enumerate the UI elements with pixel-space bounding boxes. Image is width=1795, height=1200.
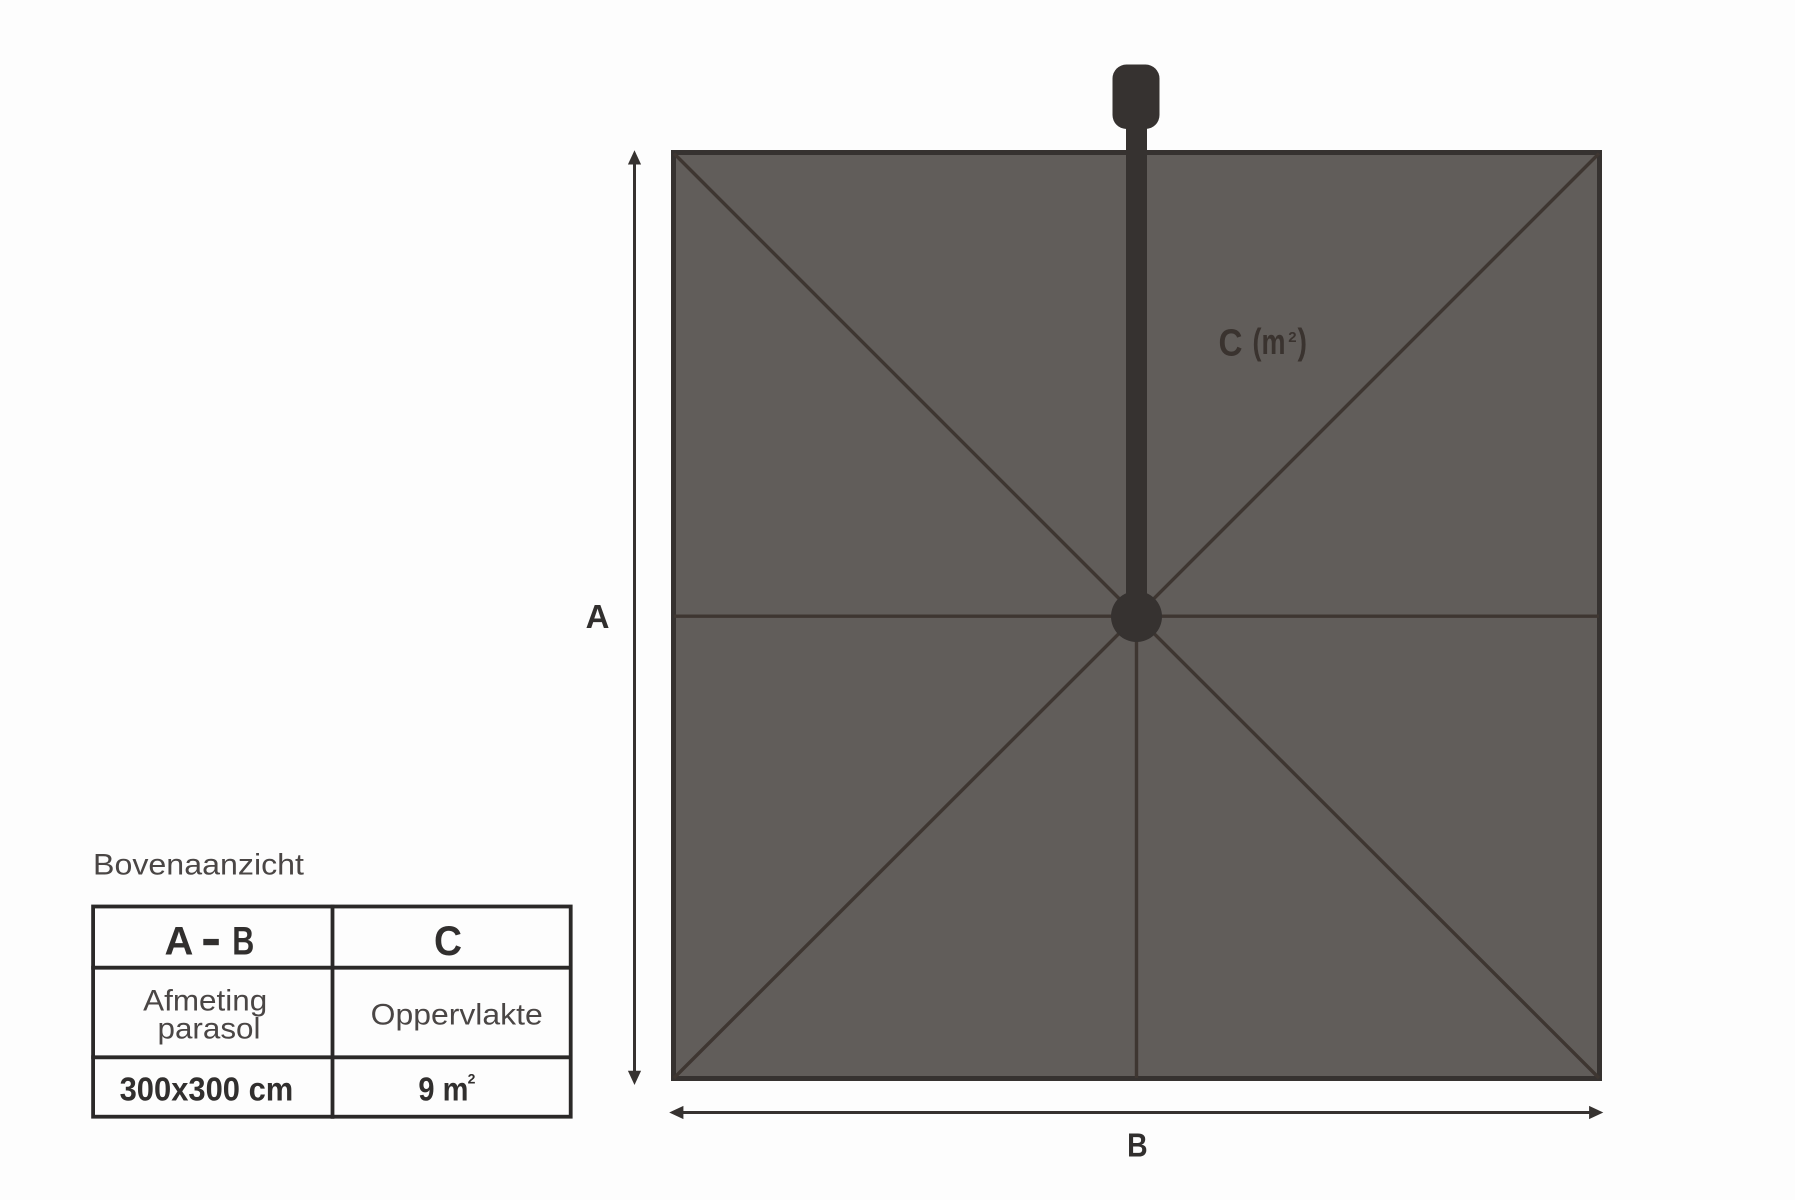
svg-text:(m: (m <box>1253 321 1286 362</box>
svg-text:A: A <box>586 598 610 635</box>
svg-text:2: 2 <box>468 1070 476 1086</box>
svg-text:300x300 cm: 300x300 cm <box>120 1070 294 1107</box>
svg-text:): ) <box>1298 321 1308 362</box>
svg-text:A: A <box>165 920 194 964</box>
svg-text:B: B <box>232 920 254 964</box>
svg-text:2: 2 <box>1288 329 1296 346</box>
svg-text:Bovenaanzicht: Bovenaanzicht <box>93 848 305 881</box>
svg-text:C: C <box>434 917 462 964</box>
svg-text:parasol: parasol <box>158 1013 261 1046</box>
svg-text:Oppervlakte: Oppervlakte <box>371 999 543 1032</box>
svg-text:B: B <box>1127 1126 1148 1163</box>
svg-text:9 m: 9 m <box>418 1070 468 1107</box>
svg-text:C: C <box>1219 323 1243 365</box>
